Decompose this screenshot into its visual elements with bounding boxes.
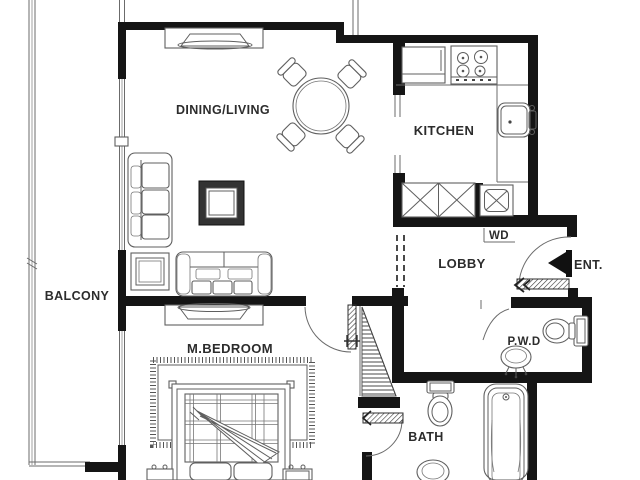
label-entrance: ENT.: [574, 258, 603, 272]
label-m-bedroom: M.BEDROOM: [187, 341, 273, 356]
stove: [451, 46, 497, 84]
floor-plan: DINING/LIVING KITCHEN BALCONY LOBBY M.BE…: [0, 0, 640, 480]
label-kitchen: KITCHEN: [414, 123, 475, 138]
toilet-bath: [427, 381, 454, 426]
wall: [118, 250, 126, 331]
pillow: [190, 463, 231, 480]
label-wd: WD: [489, 230, 509, 242]
dining-table: [293, 78, 349, 134]
side-table: [131, 253, 169, 290]
wall: [358, 397, 400, 408]
bathtub: [484, 384, 528, 480]
sofa: [176, 252, 272, 296]
tv-console-bedroom: [165, 304, 263, 326]
armchair-sofa: [128, 153, 172, 247]
sink-pwd: [501, 346, 531, 378]
pillow: [234, 463, 272, 480]
sink-bath: [417, 460, 449, 480]
label-balcony: BALCONY: [45, 289, 110, 303]
wall: [568, 288, 578, 301]
wall: [392, 288, 404, 383]
base-cabinets: [402, 183, 475, 217]
wall: [336, 35, 538, 43]
tv-console-living: [165, 28, 263, 49]
label-bath: BATH: [408, 430, 443, 444]
label-dining-living: DINING/LIVING: [176, 103, 270, 117]
window-break: [115, 137, 128, 146]
label-lobby: LOBBY: [438, 256, 486, 271]
background: [0, 0, 640, 480]
label-pwd: P.W.D: [507, 336, 540, 348]
door-leaf: [363, 413, 403, 423]
wall: [511, 297, 592, 308]
door-leaf: [348, 305, 356, 349]
kitchen-sink: [498, 103, 536, 137]
refrigerator: [402, 47, 445, 83]
coffee-table: [199, 181, 244, 225]
bed: [169, 381, 294, 480]
wall: [118, 22, 126, 79]
wall: [85, 462, 125, 472]
wall: [567, 215, 577, 237]
